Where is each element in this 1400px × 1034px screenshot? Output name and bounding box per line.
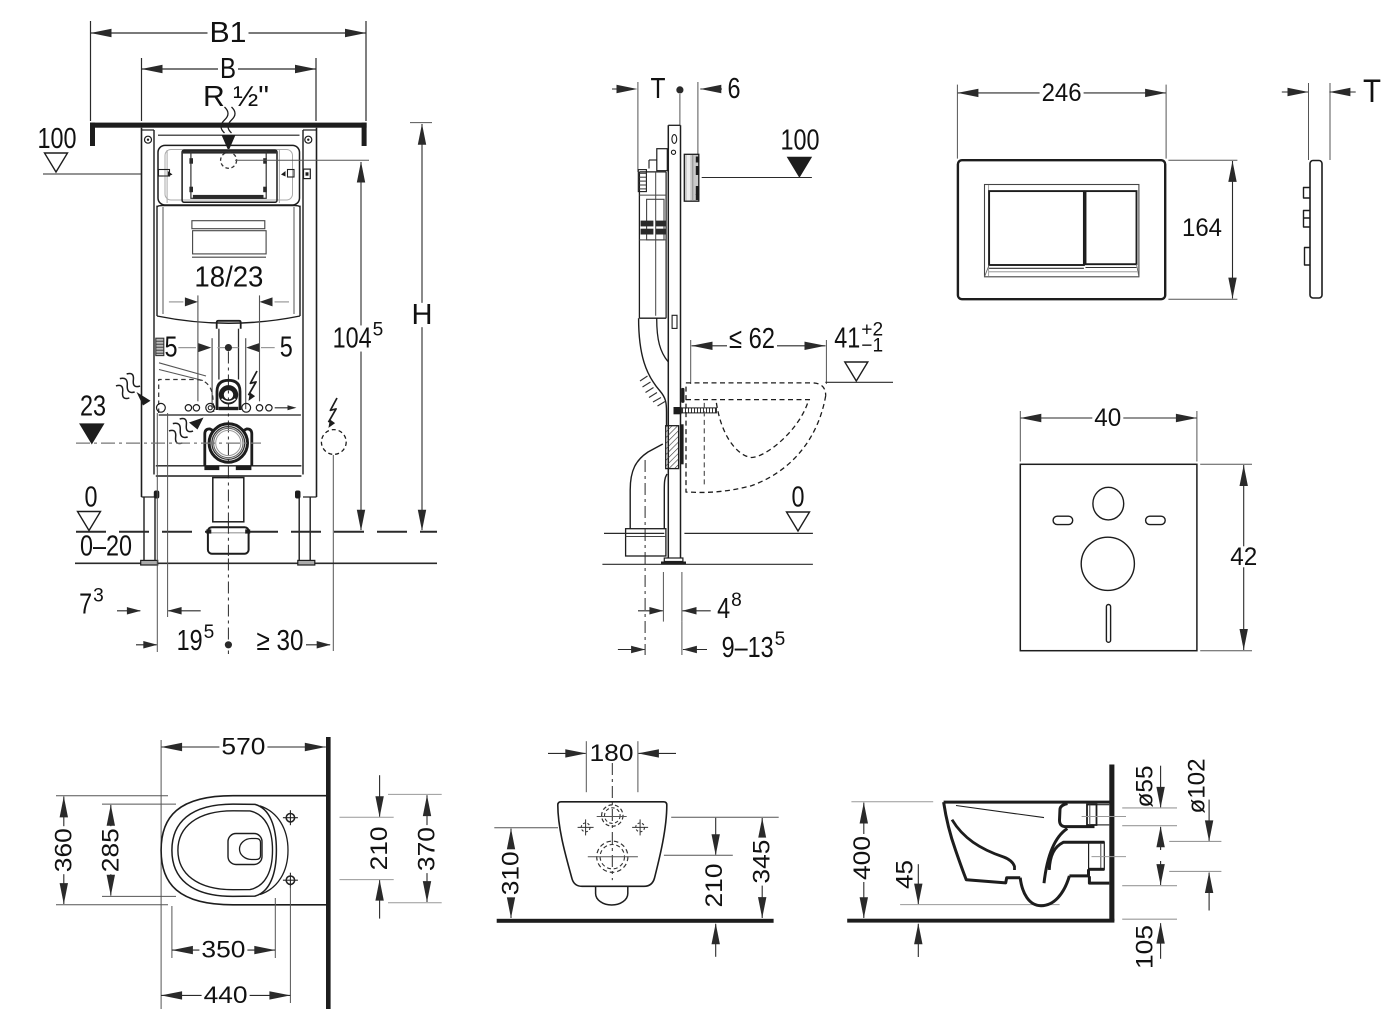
svg-text:440: 440 [204,982,248,1009]
svg-text:105: 105 [1132,925,1159,969]
svg-text:370: 370 [414,827,441,871]
svg-text:0–20: 0–20 [80,531,132,563]
svg-text:164: 164 [1182,214,1222,242]
svg-text:R ½": R ½" [203,81,269,113]
svg-text:285: 285 [97,828,124,872]
svg-text:360: 360 [50,828,77,872]
svg-text:≤ 62: ≤ 62 [729,323,775,355]
svg-text:345: 345 [749,840,776,884]
svg-text:H: H [412,299,433,331]
svg-text:210: 210 [701,864,728,908]
svg-text:570: 570 [221,734,265,761]
svg-text:40: 40 [1094,404,1121,432]
svg-text:T: T [1363,73,1381,109]
svg-text:104: 104 [333,323,372,355]
svg-text:41: 41 [834,323,860,355]
svg-text:5: 5 [165,332,178,364]
svg-text:0: 0 [85,482,98,514]
svg-text:23: 23 [80,391,106,423]
svg-text:100: 100 [38,123,77,155]
svg-text:42: 42 [1230,543,1257,571]
svg-text:ø55: ø55 [1132,766,1159,808]
svg-text:≥ 30: ≥ 30 [257,625,304,657]
svg-text:310: 310 [498,851,525,895]
svg-text:45: 45 [892,860,919,889]
svg-text:350: 350 [201,937,245,964]
svg-text:210: 210 [366,826,393,870]
svg-text:8: 8 [731,590,742,611]
svg-text:18/23: 18/23 [194,262,263,294]
svg-text:19: 19 [177,625,203,657]
svg-text:4: 4 [717,593,730,625]
svg-text:180: 180 [590,740,634,767]
svg-text:7: 7 [79,589,92,621]
svg-text:−1: −1 [861,336,883,357]
svg-text:3: 3 [93,585,104,606]
svg-text:5: 5 [775,629,786,650]
svg-text:6: 6 [728,73,741,105]
svg-text:400: 400 [849,836,876,880]
svg-text:5: 5 [373,319,384,340]
svg-text:ø102: ø102 [1184,759,1211,814]
svg-text:0: 0 [792,482,805,514]
svg-text:100: 100 [781,125,820,157]
svg-text:246: 246 [1042,79,1082,107]
svg-text:B1: B1 [210,17,247,49]
svg-text:5: 5 [280,332,293,364]
svg-text:9–13: 9–13 [722,632,774,664]
svg-text:5: 5 [204,622,215,643]
svg-text:T: T [651,73,666,105]
